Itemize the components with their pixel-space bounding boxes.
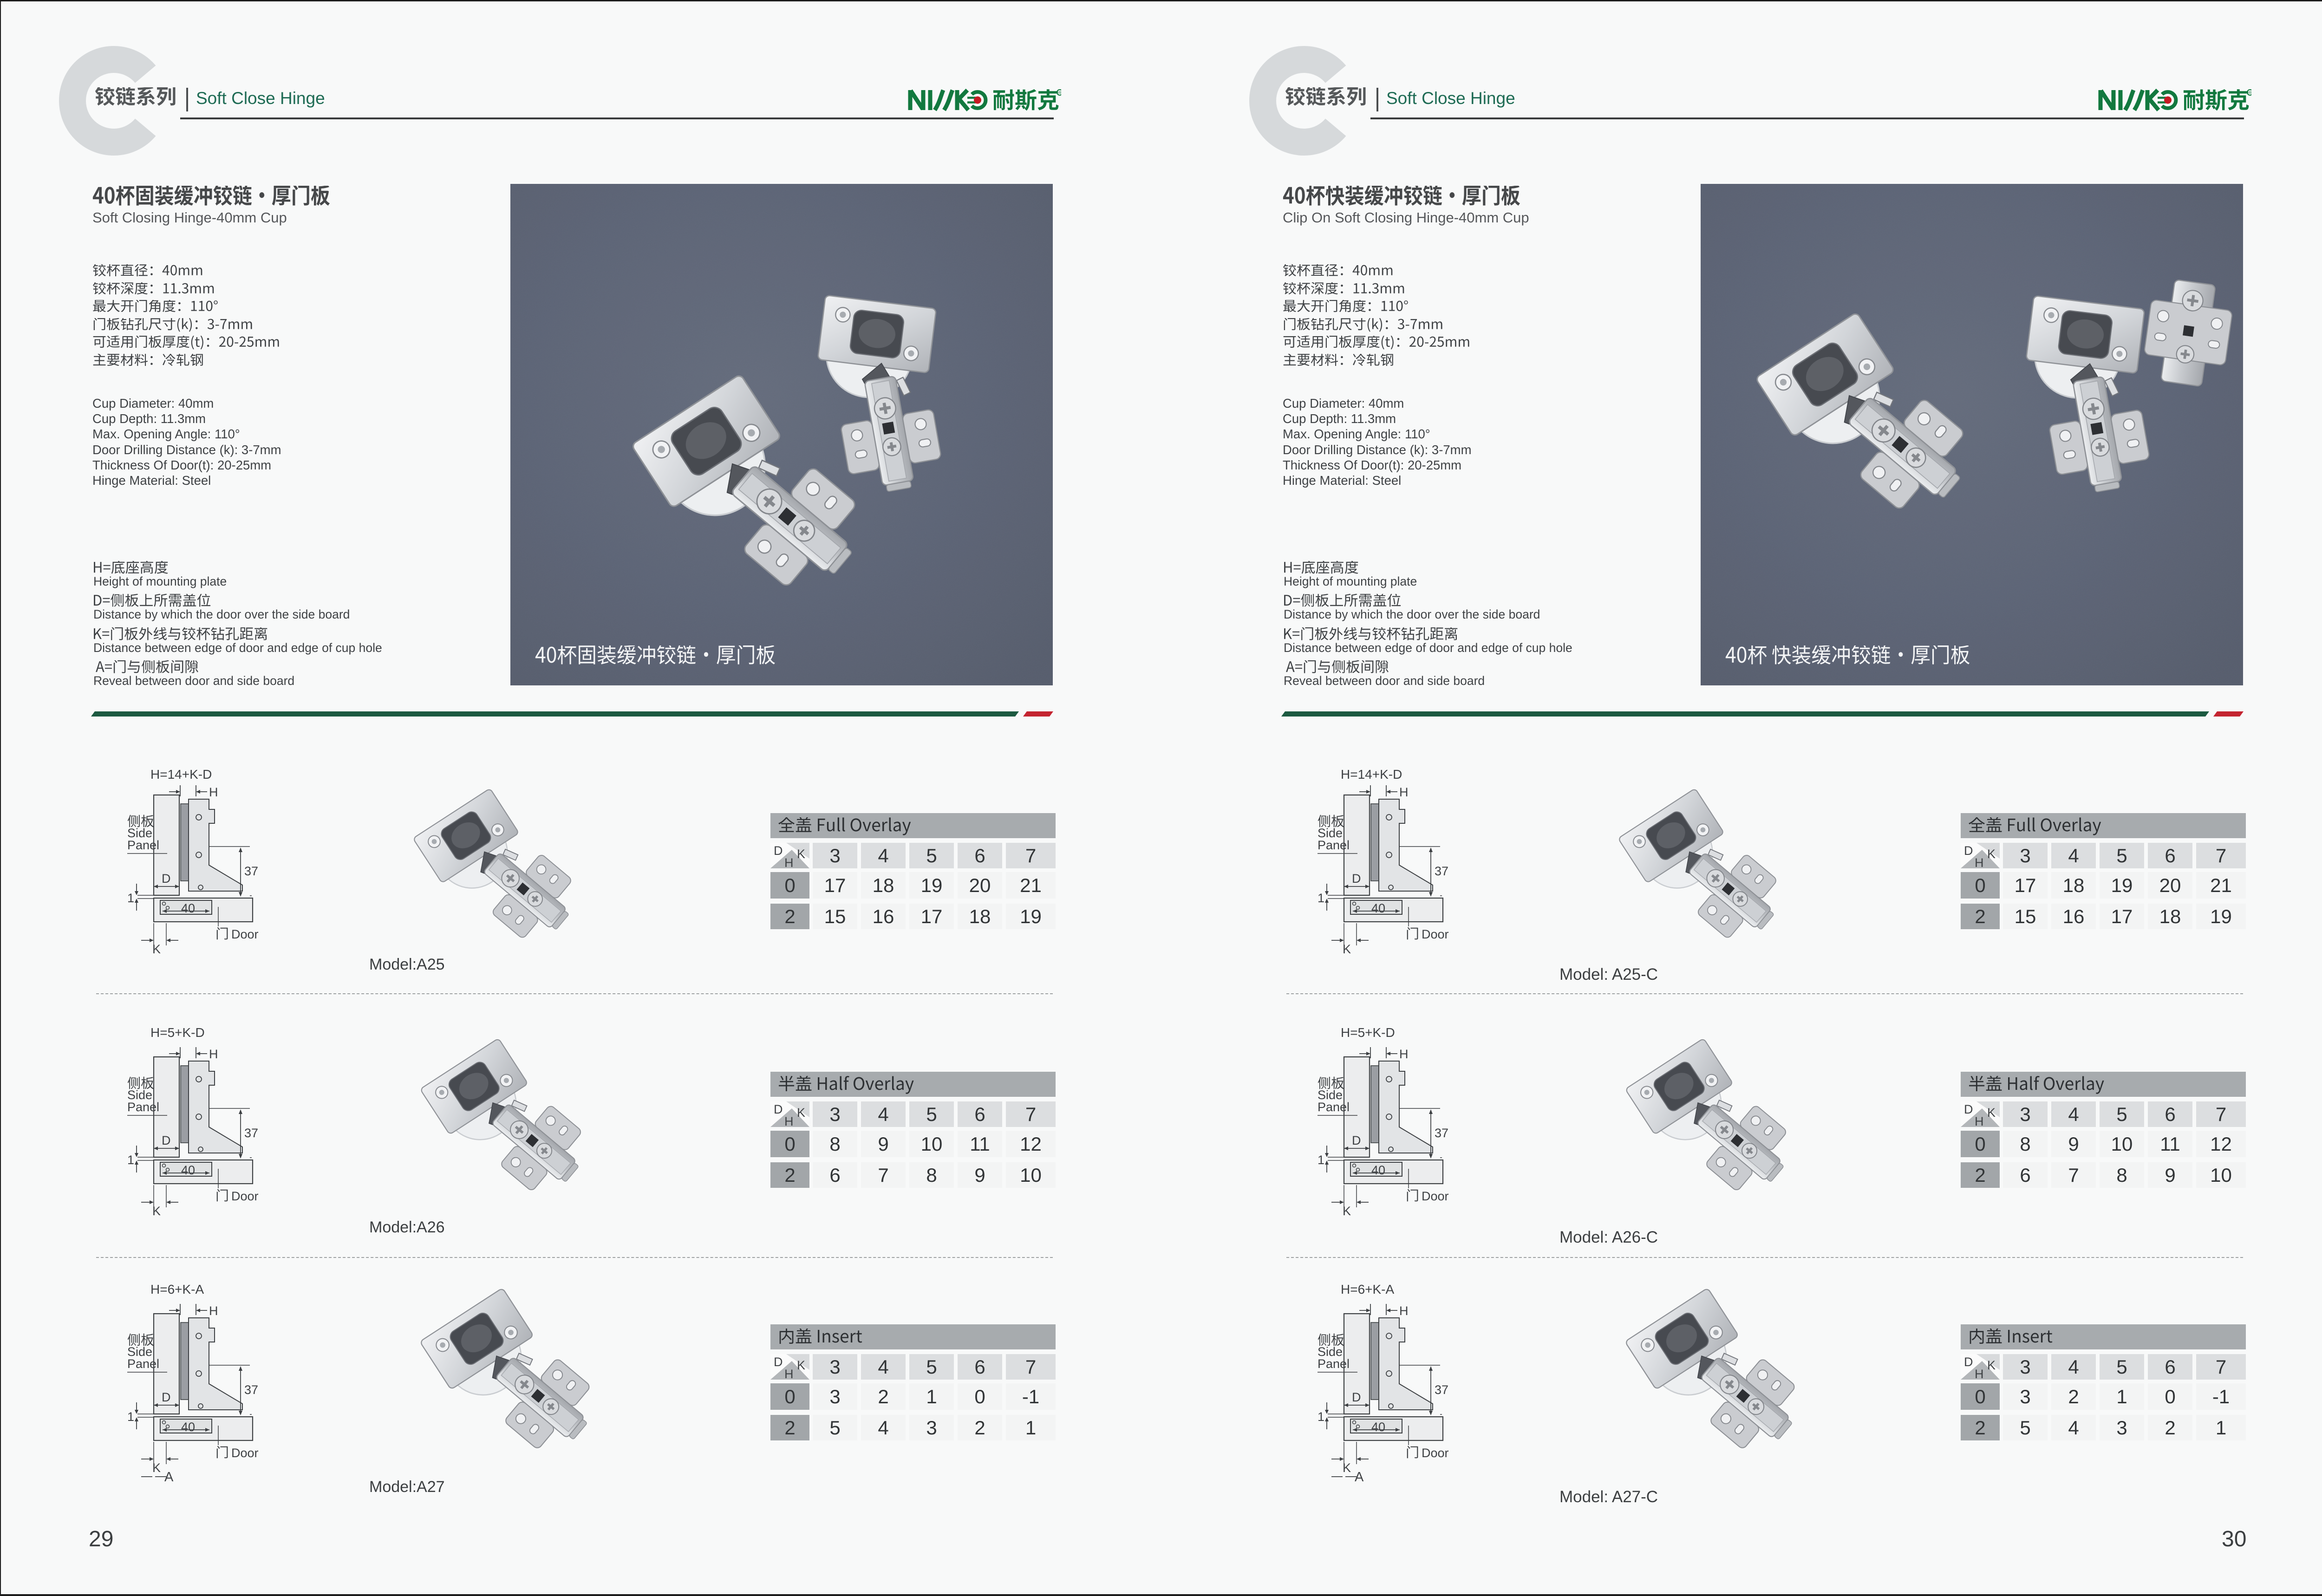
svg-text:A: A xyxy=(164,1470,174,1485)
svg-text:H: H xyxy=(1975,856,1984,868)
svg-text:H: H xyxy=(1975,1114,1984,1127)
svg-text:A: A xyxy=(1355,1470,1364,1485)
svg-text:K: K xyxy=(797,1106,805,1120)
svg-text:H: H xyxy=(784,856,794,868)
svg-text:D: D xyxy=(1964,844,1973,858)
svg-text:K: K xyxy=(797,1358,805,1372)
svg-text:K: K xyxy=(1987,847,1996,861)
svg-text:H: H xyxy=(1975,1367,1984,1380)
svg-text:H: H xyxy=(784,1114,794,1127)
svg-text:K: K xyxy=(1987,1358,1996,1372)
svg-text:D: D xyxy=(774,1355,783,1369)
svg-text:R: R xyxy=(1058,91,1061,95)
svg-text:K: K xyxy=(1987,1106,1996,1120)
svg-text:R: R xyxy=(2249,91,2251,95)
svg-text:D: D xyxy=(774,1102,783,1116)
svg-text:H: H xyxy=(784,1367,794,1380)
svg-text:K: K xyxy=(797,847,805,861)
svg-text:D: D xyxy=(1964,1355,1973,1369)
svg-text:D: D xyxy=(1964,1102,1973,1116)
svg-text:D: D xyxy=(774,844,783,858)
